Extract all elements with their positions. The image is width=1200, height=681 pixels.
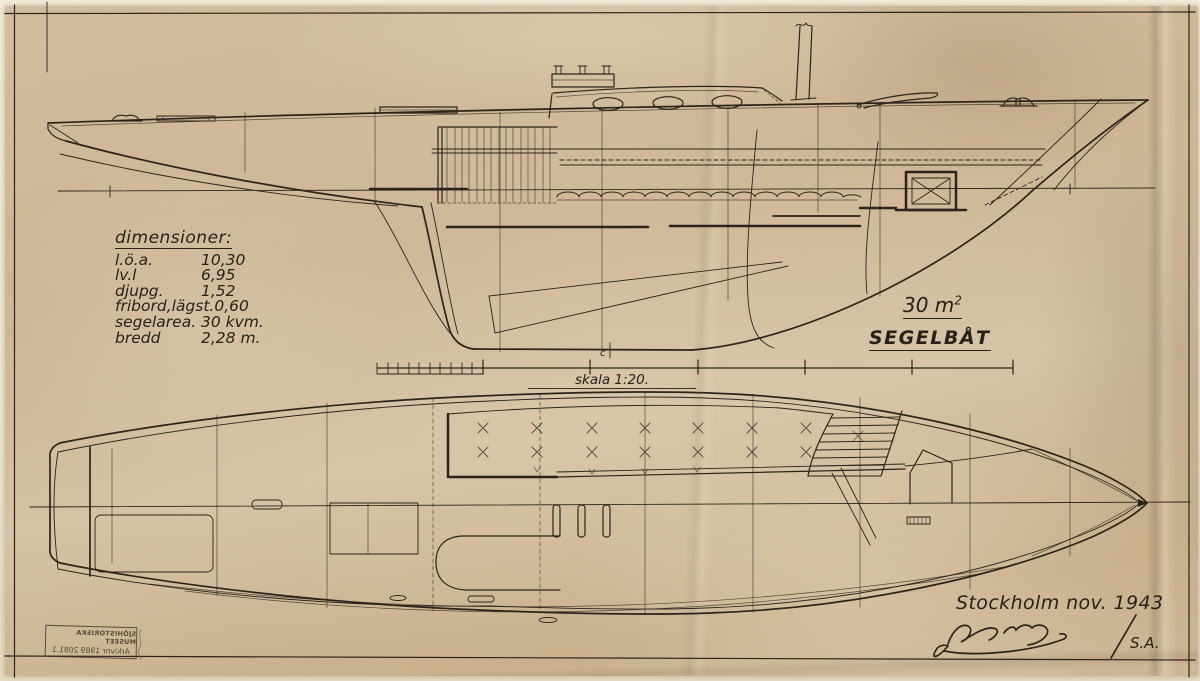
mid-locker	[330, 503, 418, 554]
cabin-plan-outline	[448, 414, 557, 477]
waterline	[58, 188, 1155, 191]
boat-type-label: SEGELBÅT	[869, 327, 991, 351]
locker-box	[896, 172, 966, 210]
cockpit-grating	[438, 127, 557, 203]
signature	[934, 625, 1066, 656]
planking-seams	[150, 566, 1010, 612]
stamp-line1: SJÖHISTORISKA MUSEET	[46, 628, 136, 646]
sail-area-label: 30 m2	[903, 293, 962, 319]
stamp-line2: Arkivnr 1989 2081.1	[52, 645, 130, 656]
sheer-line	[48, 100, 1148, 123]
museum-stamp: SJÖHISTORISKA MUSEET Arkivnr 1989 2081.1	[45, 625, 138, 659]
dimensions-title: dimensioner:	[115, 231, 232, 249]
cabin-trunk	[549, 86, 782, 118]
plan-view	[30, 392, 1190, 623]
label-plate	[907, 517, 930, 524]
skylight	[552, 66, 614, 87]
blueprint-scan: c	[0, 0, 1200, 681]
aft-locker	[95, 515, 213, 572]
pencil-mark	[138, 629, 141, 660]
companionway-ladder	[808, 411, 902, 476]
centerline-mark: c	[600, 348, 606, 359]
scale-label: skala 1:20.	[528, 372, 696, 389]
dimension-row: bredd2,28 m.	[115, 331, 264, 347]
berth-cushion	[557, 192, 861, 197]
berth-x-marks	[478, 423, 811, 457]
series-mark: S.A.	[1130, 634, 1160, 652]
counter-line	[66, 141, 422, 207]
engine-bearers	[553, 505, 610, 537]
place-date-label: Stockholm nov. 1943	[956, 592, 1163, 614]
interior-profile	[370, 127, 1045, 227]
rudder-edge	[422, 207, 473, 349]
fore-hatch	[910, 450, 952, 504]
tiller-fitting	[252, 500, 282, 509]
keel-bottom	[473, 349, 692, 350]
cabin-sole	[370, 189, 648, 227]
cockpit-well-plan	[436, 536, 560, 590]
dimensions-table: dimensioner: l.ö.a.10,30 lv.l6,95 djupg.…	[115, 231, 264, 346]
mast-stub	[791, 23, 816, 100]
dimension-row: l.ö.a.10,30	[115, 253, 264, 269]
ballast-keel	[489, 262, 788, 333]
